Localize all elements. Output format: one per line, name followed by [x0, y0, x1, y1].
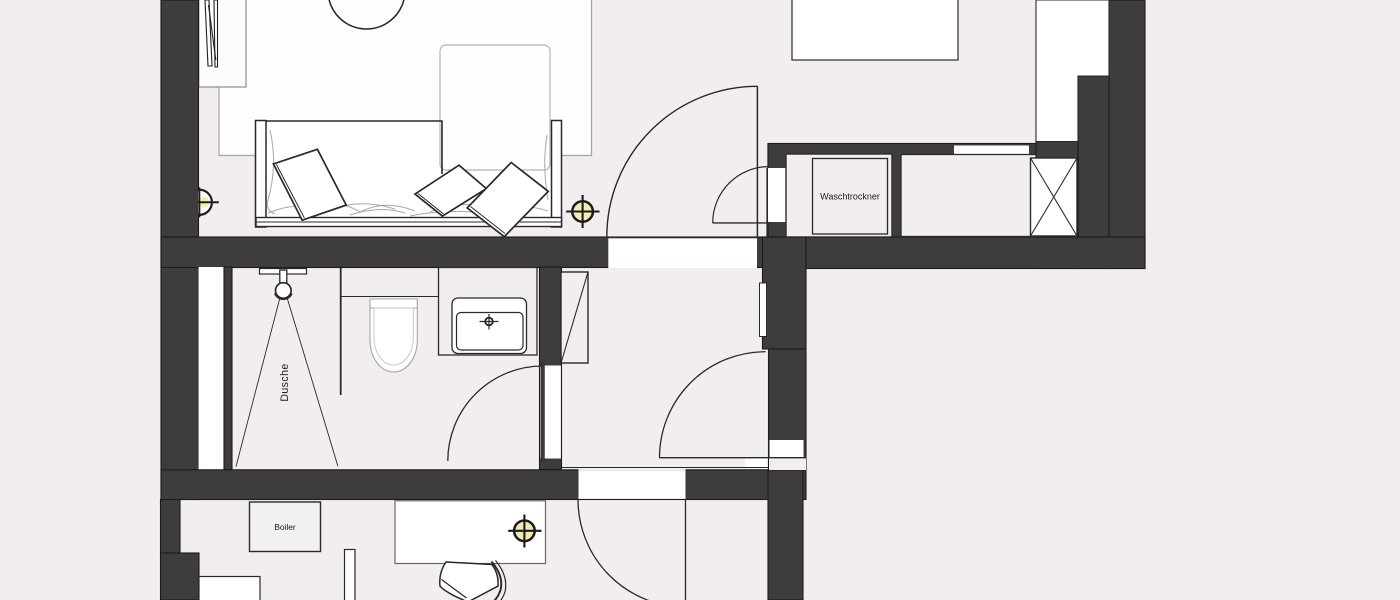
svg-text:Boiler: Boiler: [274, 522, 296, 532]
svg-text:Dusche: Dusche: [279, 363, 291, 401]
svg-text:Waschtrockner: Waschtrockner: [820, 192, 880, 202]
